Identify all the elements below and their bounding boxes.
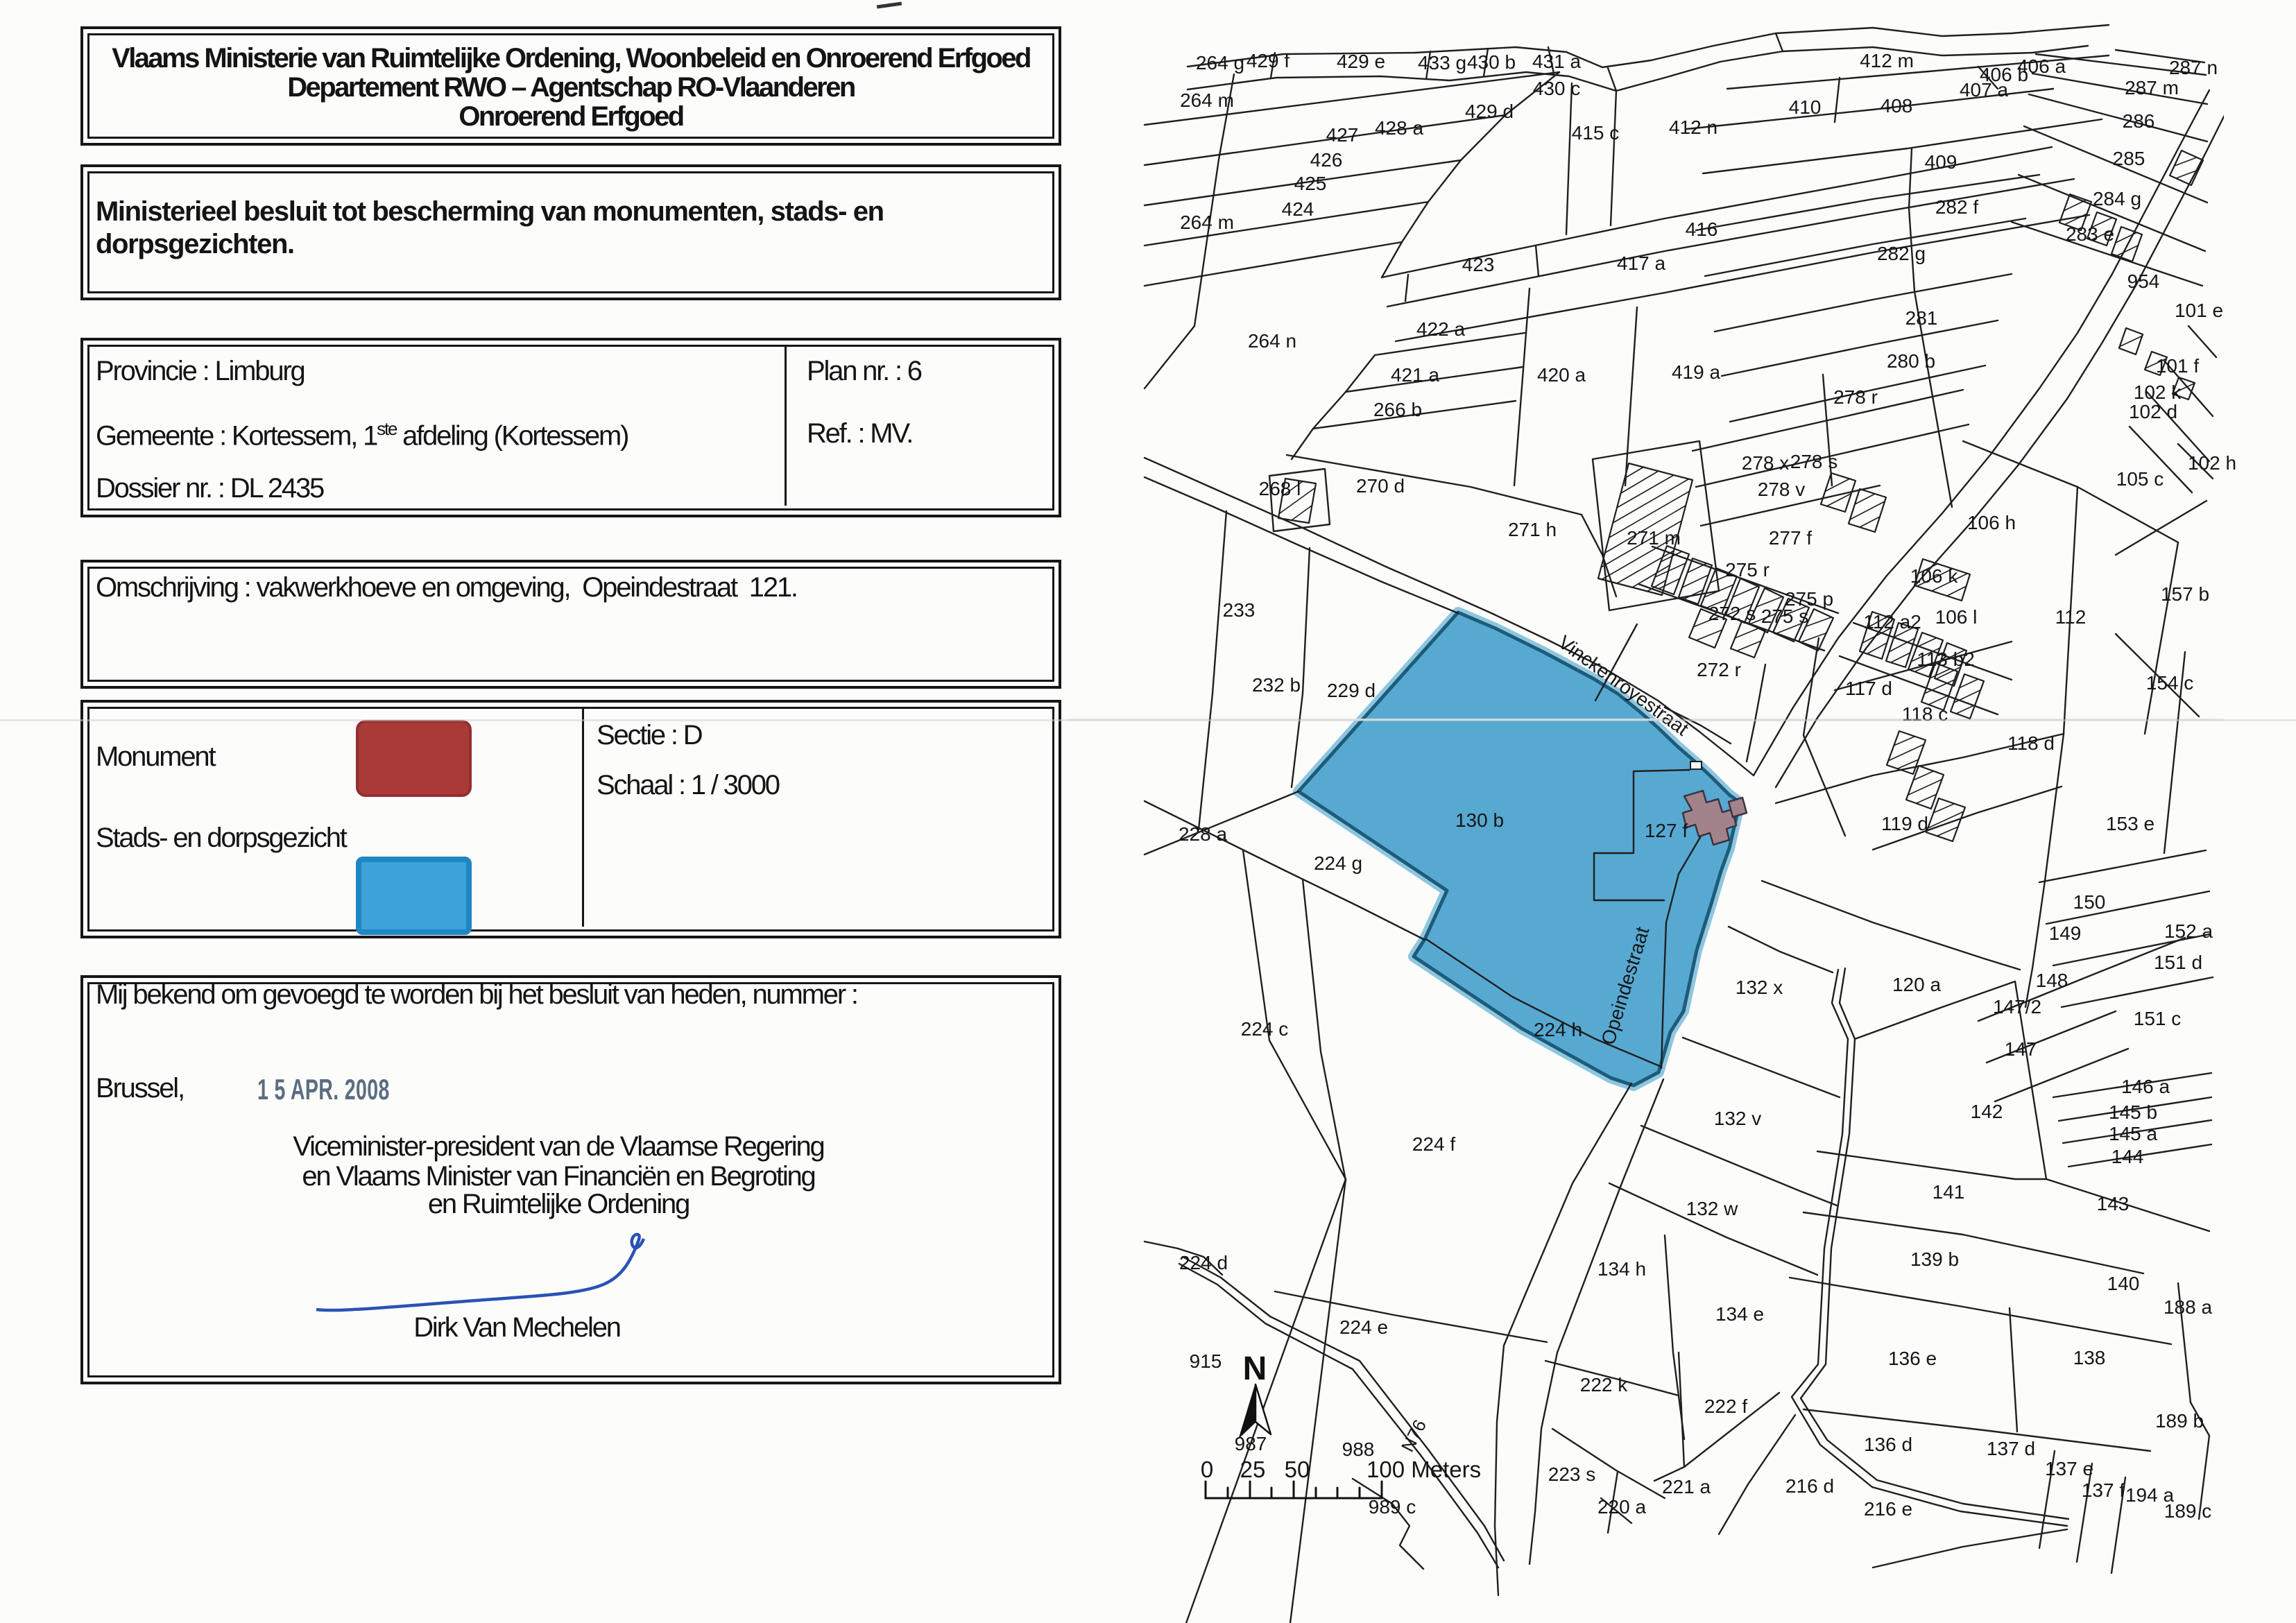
svg-text:224 e: 224 e <box>1339 1316 1388 1338</box>
svg-text:224 c: 224 c <box>1241 1018 1289 1040</box>
svg-text:117 d: 117 d <box>1845 678 1892 699</box>
svg-text:229 d: 229 d <box>1327 680 1376 701</box>
svg-text:264 g: 264 g <box>1196 52 1244 74</box>
svg-text:412 n: 412 n <box>1669 117 1717 138</box>
svg-text:137 e: 137 e <box>2045 1458 2093 1479</box>
svg-text:224 d: 224 d <box>1179 1252 1228 1273</box>
svg-text:915: 915 <box>1190 1350 1222 1372</box>
svg-text:112 a2: 112 a2 <box>1863 611 1921 633</box>
svg-text:132 w: 132 w <box>1686 1198 1738 1219</box>
svg-text:106 k: 106 k <box>1910 565 1958 587</box>
svg-text:285: 285 <box>2113 148 2145 169</box>
svg-text:282 g: 282 g <box>1877 243 1926 264</box>
svg-text:420 a: 420 a <box>1537 364 1586 386</box>
svg-text:150: 150 <box>2073 891 2106 913</box>
svg-text:127 f: 127 f <box>1645 820 1688 841</box>
svg-text:417 a: 417 a <box>1617 252 1665 274</box>
svg-text:132 x: 132 x <box>1736 977 1783 998</box>
svg-text:278 x: 278 x <box>1742 452 1790 474</box>
svg-text:147: 147 <box>2005 1038 2037 1060</box>
svg-text:149: 149 <box>2049 922 2082 944</box>
svg-text:154 c: 154 c <box>2146 672 2194 694</box>
svg-text:188 a: 188 a <box>2164 1296 2212 1318</box>
svg-text:146 a: 146 a <box>2121 1076 2170 1097</box>
svg-text:419 a: 419 a <box>1672 361 1720 383</box>
svg-text:224 h: 224 h <box>1534 1019 1582 1040</box>
svg-text:264 m: 264 m <box>1180 212 1234 233</box>
svg-text:410: 410 <box>1789 96 1822 118</box>
svg-text:431 a: 431 a <box>1532 51 1581 72</box>
svg-text:153 e: 153 e <box>2106 813 2154 834</box>
svg-text:232 b: 232 b <box>1252 674 1301 696</box>
svg-text:151 c: 151 c <box>2134 1008 2182 1029</box>
svg-text:275 s: 275 s <box>1761 606 1809 627</box>
svg-text:423: 423 <box>1462 254 1495 275</box>
svg-text:233: 233 <box>1223 599 1256 621</box>
svg-text:407 a: 407 a <box>1960 79 2008 101</box>
svg-text:270 d: 270 d <box>1356 475 1405 497</box>
svg-text:430 c: 430 c <box>1533 78 1581 99</box>
svg-text:228 a: 228 a <box>1179 823 1227 845</box>
svg-text:954: 954 <box>2127 270 2160 292</box>
svg-text:429 e: 429 e <box>1337 51 1385 72</box>
svg-text:189 b: 189 b <box>2155 1410 2204 1432</box>
svg-text:152 a: 152 a <box>2164 920 2213 942</box>
svg-text:224 f: 224 f <box>1412 1133 1455 1155</box>
svg-text:102 d: 102 d <box>2129 401 2177 422</box>
svg-text:409: 409 <box>1925 151 1957 173</box>
svg-text:220 a: 220 a <box>1597 1496 1646 1518</box>
svg-text:189 c: 189 c <box>2164 1500 2212 1522</box>
svg-text:143: 143 <box>2097 1193 2130 1214</box>
svg-text:102 k: 102 k <box>2134 381 2182 403</box>
svg-text:142: 142 <box>1971 1101 2003 1122</box>
svg-text:137 d: 137 d <box>1987 1438 2035 1459</box>
svg-text:278 v: 278 v <box>1758 479 1806 500</box>
svg-text:283 e: 283 e <box>2066 223 2114 245</box>
svg-text:282 f: 282 f <box>1935 196 1978 218</box>
svg-text:266 b: 266 b <box>1373 399 1422 420</box>
svg-text:138: 138 <box>2073 1347 2106 1368</box>
svg-text:415 c: 415 c <box>1572 122 1620 144</box>
svg-text:429 d: 429 d <box>1465 101 1514 122</box>
svg-text:272 s: 272 s <box>1708 603 1756 624</box>
svg-text:989 c: 989 c <box>1369 1496 1416 1518</box>
svg-text:426: 426 <box>1310 149 1343 171</box>
svg-text:223 s: 223 s <box>1548 1463 1596 1485</box>
svg-text:286: 286 <box>2123 110 2155 132</box>
svg-text:224 g: 224 g <box>1314 852 1362 874</box>
svg-text:137 f: 137 f <box>2082 1479 2125 1501</box>
svg-text:281: 281 <box>1905 307 1938 329</box>
svg-text:113 b2: 113 b2 <box>1917 649 1975 670</box>
svg-text:130 b: 130 b <box>1455 809 1504 831</box>
svg-text:120 a: 120 a <box>1892 974 1941 995</box>
svg-text:151 d: 151 d <box>2154 952 2202 973</box>
svg-text:118 d: 118 d <box>2007 732 2055 754</box>
svg-text:147/2: 147/2 <box>1993 996 2041 1017</box>
svg-text:421 a: 421 a <box>1391 364 1439 386</box>
svg-text:112: 112 <box>2055 606 2087 628</box>
svg-text:216 e: 216 e <box>1864 1498 1912 1520</box>
svg-text:50: 50 <box>1285 1457 1310 1482</box>
svg-text:222 k: 222 k <box>1580 1374 1628 1396</box>
svg-text:264 n: 264 n <box>1248 330 1296 352</box>
svg-text:136 d: 136 d <box>1864 1434 1912 1455</box>
svg-text:271 h: 271 h <box>1508 519 1557 540</box>
svg-text:272 r: 272 r <box>1697 659 1741 680</box>
svg-text:429 f: 429 f <box>1246 50 1290 71</box>
svg-text:430 b: 430 b <box>1467 51 1516 73</box>
svg-text:216 d: 216 d <box>1785 1475 1834 1497</box>
svg-text:275 r: 275 r <box>1725 559 1770 581</box>
svg-text:222 f: 222 f <box>1704 1396 1747 1417</box>
svg-text:428 a: 428 a <box>1375 117 1423 139</box>
svg-text:221 a: 221 a <box>1662 1476 1711 1497</box>
svg-text:412 m: 412 m <box>1860 50 1914 71</box>
svg-text:425: 425 <box>1294 173 1327 194</box>
svg-text:139 b: 139 b <box>1910 1248 1959 1270</box>
svg-text:280 b: 280 b <box>1887 350 1935 372</box>
svg-text:416: 416 <box>1686 218 1718 240</box>
svg-text:157 b: 157 b <box>2161 583 2209 605</box>
svg-text:268 l: 268 l <box>1259 478 1301 499</box>
svg-text:427: 427 <box>1326 124 1359 146</box>
svg-text:102 h: 102 h <box>2188 452 2236 474</box>
svg-text:N76: N76 <box>1397 1416 1430 1455</box>
svg-text:101 e: 101 e <box>2175 300 2223 321</box>
svg-text:25: 25 <box>1240 1457 1266 1482</box>
svg-text:287 m: 287 m <box>2125 77 2179 98</box>
svg-text:148: 148 <box>2036 970 2068 991</box>
svg-text:134 e: 134 e <box>1715 1303 1764 1325</box>
svg-text:145 b: 145 b <box>2109 1101 2157 1123</box>
svg-text:101 f: 101 f <box>2156 355 2199 377</box>
svg-text:278 r: 278 r <box>1833 386 1878 408</box>
svg-text:141: 141 <box>1933 1181 1965 1203</box>
svg-text:284 g: 284 g <box>2093 188 2141 209</box>
svg-text:422 a: 422 a <box>1416 318 1465 340</box>
svg-text:106 l: 106 l <box>1935 606 1978 628</box>
svg-text:106 h: 106 h <box>1967 512 2016 533</box>
svg-text:277 f: 277 f <box>1769 527 1812 549</box>
svg-text:424: 424 <box>1282 198 1314 220</box>
svg-text:140: 140 <box>2107 1273 2140 1294</box>
svg-text:134 h: 134 h <box>1597 1258 1646 1280</box>
svg-text:278 s: 278 s <box>1790 451 1838 472</box>
svg-text:105 c: 105 c <box>2116 468 2164 490</box>
svg-text:N: N <box>1243 1350 1267 1387</box>
svg-text:145 a: 145 a <box>2109 1123 2157 1144</box>
svg-text:132 v: 132 v <box>1714 1108 1762 1129</box>
svg-text:136 e: 136 e <box>1888 1348 1937 1369</box>
svg-text:144: 144 <box>2111 1146 2144 1167</box>
svg-text:408: 408 <box>1881 95 1913 117</box>
svg-text:118 c: 118 c <box>1902 703 1948 725</box>
svg-text:100 Meters: 100 Meters <box>1367 1457 1481 1482</box>
svg-text:119 d: 119 d <box>1881 813 1928 834</box>
svg-text:0: 0 <box>1201 1457 1213 1482</box>
svg-text:287 n: 287 n <box>2169 57 2218 78</box>
svg-text:433 g: 433 g <box>1418 52 1466 74</box>
svg-text:264 m: 264 m <box>1180 89 1234 111</box>
svg-text:271 m: 271 m <box>1627 527 1681 549</box>
